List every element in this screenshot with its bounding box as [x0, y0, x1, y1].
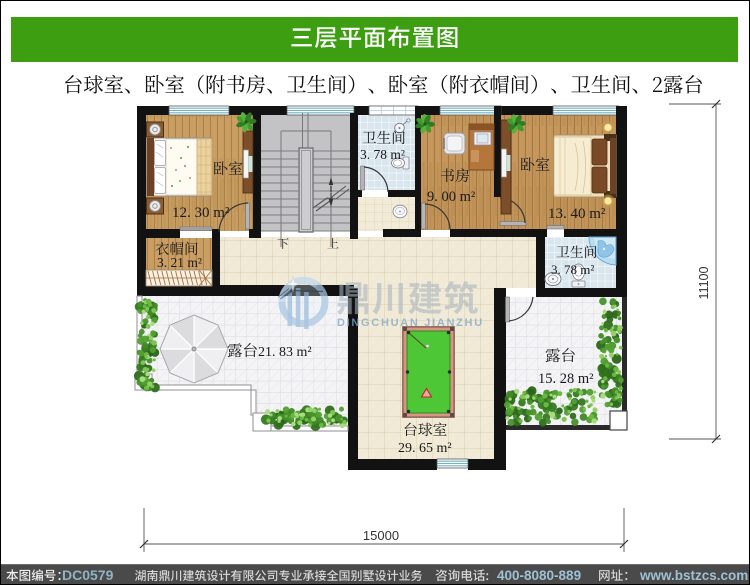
- svg-text:www.bstzcs.com: www.bstzcs.com: [639, 568, 748, 583]
- svg-text:DINGCHUAN JIANZHU: DINGCHUAN JIANZHU: [337, 317, 484, 329]
- svg-text:3. 78 m²: 3. 78 m²: [360, 147, 405, 162]
- svg-text:21. 83 m²: 21. 83 m²: [258, 345, 312, 360]
- svg-text:DC0579: DC0579: [62, 567, 114, 583]
- svg-text:15000: 15000: [363, 528, 399, 543]
- svg-text:9. 00 m²: 9. 00 m²: [427, 189, 476, 205]
- svg-text:11100: 11100: [697, 267, 711, 300]
- svg-text:29. 65 m²: 29. 65 m²: [398, 441, 452, 456]
- svg-text:3. 21 m²: 3. 21 m²: [157, 255, 202, 270]
- svg-text:12. 30 m²: 12. 30 m²: [172, 205, 230, 221]
- svg-text:3. 78 m²: 3. 78 m²: [551, 262, 594, 277]
- svg-text:15. 28 m²: 15. 28 m²: [538, 371, 594, 387]
- svg-text:400-8080-889: 400-8080-889: [497, 568, 581, 583]
- svg-text:13. 40 m²: 13. 40 m²: [548, 206, 606, 222]
